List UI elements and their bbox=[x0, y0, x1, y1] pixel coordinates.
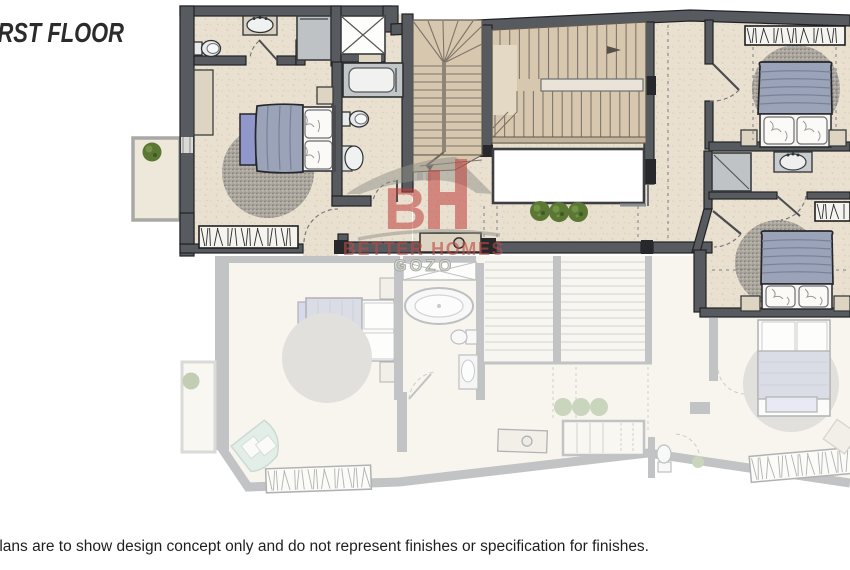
svg-text:GOZO: GOZO bbox=[394, 257, 455, 275]
svg-text:BETTER HOMES: BETTER HOMES bbox=[343, 239, 505, 259]
svg-text:Plans are to show design conce: Plans are to show design concept only an… bbox=[0, 538, 649, 555]
svg-text:FIRST FLOOR: FIRST FLOOR bbox=[0, 17, 125, 48]
